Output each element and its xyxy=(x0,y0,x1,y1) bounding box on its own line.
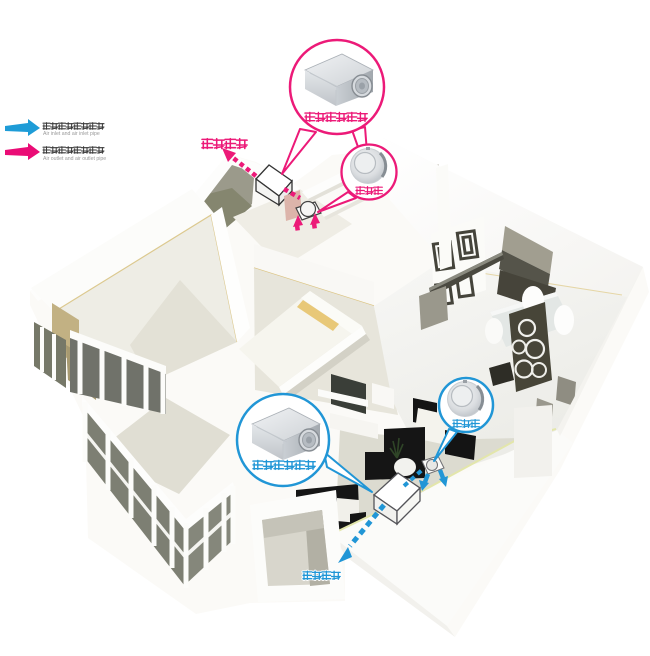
svg-text:Air outlet and air outlet pipe: Air outlet and air outlet pipe xyxy=(43,156,106,162)
svg-text:Air inlet and air inlet pipe: Air inlet and air inlet pipe xyxy=(43,131,100,137)
